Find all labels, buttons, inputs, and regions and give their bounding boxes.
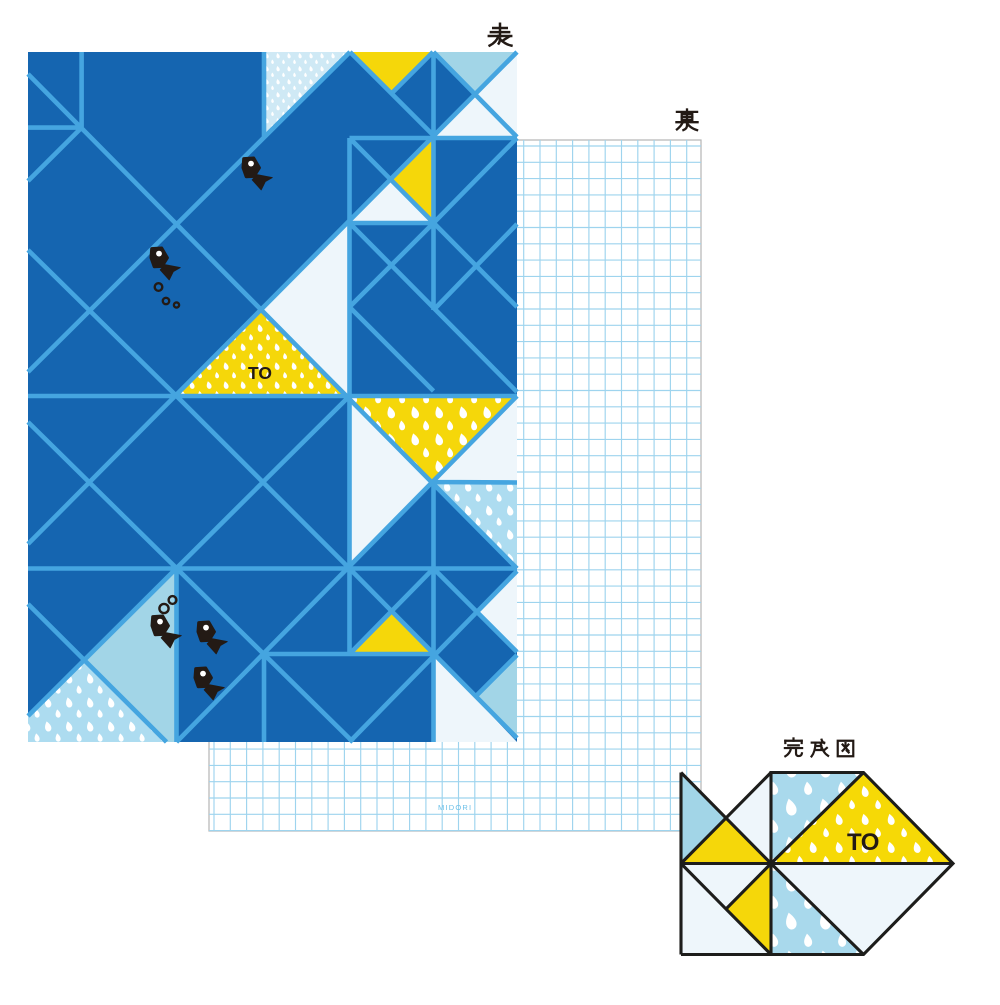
svg-text:TO: TO bbox=[248, 363, 272, 383]
svg-text:MIDORI: MIDORI bbox=[438, 803, 472, 812]
svg-text:TO: TO bbox=[847, 829, 879, 856]
